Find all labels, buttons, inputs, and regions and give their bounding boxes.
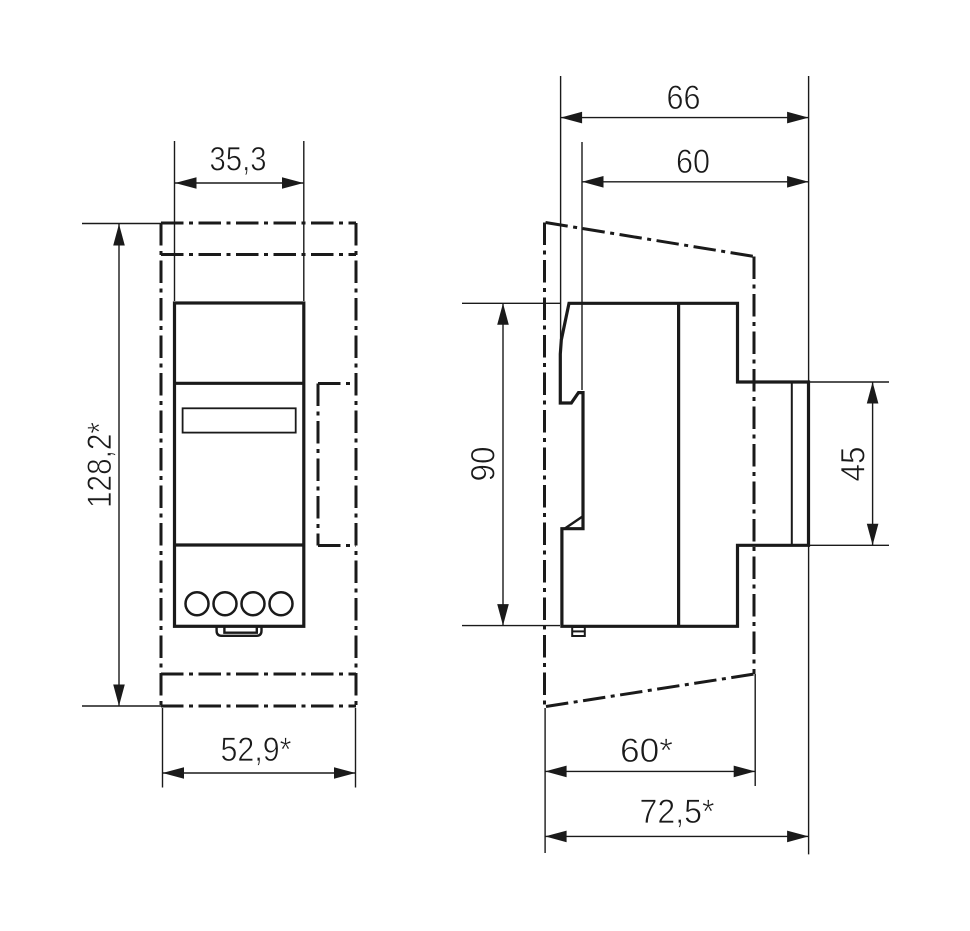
svg-text:128,2*: 128,2* [81,422,119,508]
svg-text:45: 45 [834,447,872,482]
svg-text:72,5*: 72,5* [640,793,715,831]
svg-text:35,3: 35,3 [210,140,267,178]
svg-text:66: 66 [667,79,701,117]
svg-text:60: 60 [676,143,710,181]
svg-text:60*: 60* [620,732,673,770]
svg-text:52,9*: 52,9* [221,731,292,769]
svg-text:90: 90 [465,447,503,482]
